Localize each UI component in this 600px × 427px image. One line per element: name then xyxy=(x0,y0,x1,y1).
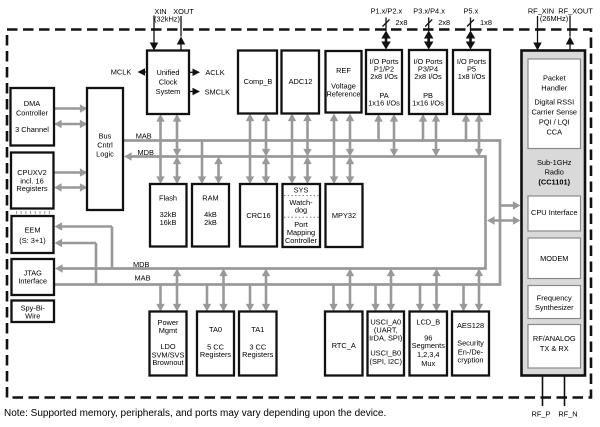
svg-text:SYS: SYS xyxy=(294,186,309,195)
svg-text:RTC_A: RTC_A xyxy=(332,341,356,350)
svg-text:2x8: 2x8 xyxy=(438,18,450,27)
svg-text:(S: 3+1): (S: 3+1) xyxy=(19,236,46,245)
svg-text:Logic: Logic xyxy=(96,150,114,159)
svg-text:CPU Interface: CPU Interface xyxy=(531,208,577,217)
svg-text:MCLK: MCLK xyxy=(111,68,132,77)
svg-text:Segments: Segments xyxy=(412,341,446,350)
svg-text:1,2,3,4: 1,2,3,4 xyxy=(417,350,440,359)
svg-text:Wire: Wire xyxy=(25,312,40,321)
svg-text:(32kHz): (32kHz) xyxy=(154,15,180,24)
svg-text:TA0: TA0 xyxy=(209,325,222,334)
svg-text:dog: dog xyxy=(295,206,307,215)
svg-text:CCA: CCA xyxy=(546,128,562,137)
svg-text:P1.x/P2.x: P1.x/P2.x xyxy=(371,6,403,15)
svg-text:CRC16: CRC16 xyxy=(246,211,270,220)
svg-text:1x16 I/Os: 1x16 I/Os xyxy=(368,99,400,108)
svg-text:1x8 I/Os: 1x8 I/Os xyxy=(458,72,486,81)
svg-text:ADC12: ADC12 xyxy=(289,77,313,86)
svg-text:IrDA, SPI): IrDA, SPI) xyxy=(369,334,402,343)
svg-text:P3.x/P4.x: P3.x/P4.x xyxy=(413,6,445,15)
svg-text:Packet: Packet xyxy=(543,74,566,83)
svg-text:1x16 I/Os: 1x16 I/Os xyxy=(412,99,444,108)
svg-text:(SPI, I2C): (SPI, I2C) xyxy=(370,357,402,366)
svg-text:Note: Supported memory, periph: Note: Supported memory, peripherals, and… xyxy=(4,408,386,419)
svg-text:SMCLK: SMCLK xyxy=(205,87,231,96)
svg-text:3 Channel: 3 Channel xyxy=(15,125,49,134)
svg-text:LCD_B: LCD_B xyxy=(416,318,440,327)
svg-text:Sub-1GHz: Sub-1GHz xyxy=(537,158,572,167)
svg-text:DMA: DMA xyxy=(24,99,40,108)
svg-text:Clock: Clock xyxy=(159,78,178,87)
svg-text:2x8 I/Os: 2x8 I/Os xyxy=(414,72,442,81)
svg-text:Synthesizer: Synthesizer xyxy=(535,303,574,312)
svg-text:Carrier Sense: Carrier Sense xyxy=(531,108,577,117)
svg-text:MDB: MDB xyxy=(137,148,153,157)
svg-text:RAM: RAM xyxy=(202,194,218,203)
svg-text:MPY32: MPY32 xyxy=(332,211,356,220)
svg-text:Security: Security xyxy=(457,339,484,348)
svg-text:Cntrl: Cntrl xyxy=(97,141,113,150)
svg-text:2x8: 2x8 xyxy=(396,18,408,27)
svg-text:Comp_B: Comp_B xyxy=(244,77,273,86)
svg-text:RF_N: RF_N xyxy=(558,410,577,419)
svg-text:RF/ANALOG: RF/ANALOG xyxy=(533,334,576,343)
svg-text:Handler: Handler xyxy=(541,84,567,93)
svg-text:Registers: Registers xyxy=(242,350,274,359)
svg-text:TA1: TA1 xyxy=(251,325,264,334)
svg-text:Registers: Registers xyxy=(16,184,48,193)
svg-text:16kB: 16kB xyxy=(160,218,177,227)
svg-text:MAB: MAB xyxy=(136,132,152,141)
svg-text:Controller: Controller xyxy=(16,109,49,118)
svg-text:Registers: Registers xyxy=(200,350,232,359)
svg-text:ACLK: ACLK xyxy=(205,68,224,77)
svg-text:RF_P: RF_P xyxy=(532,410,551,419)
svg-text:MODEM: MODEM xyxy=(540,254,568,263)
svg-text:MAB: MAB xyxy=(134,274,150,283)
svg-text:TX & RX: TX & RX xyxy=(540,344,569,353)
svg-text:Bus: Bus xyxy=(99,132,112,141)
svg-text:Reference: Reference xyxy=(326,90,360,99)
svg-text:Controller: Controller xyxy=(285,236,318,245)
svg-text:Mgmt: Mgmt xyxy=(159,326,177,335)
svg-text:Frequency: Frequency xyxy=(537,294,572,303)
svg-text:PQI / LQI: PQI / LQI xyxy=(539,118,570,127)
svg-text:Unified: Unified xyxy=(156,68,179,77)
svg-text:2x8 I/Os: 2x8 I/Os xyxy=(370,72,398,81)
svg-text:MDB: MDB xyxy=(133,260,149,269)
svg-text:Mux: Mux xyxy=(421,359,435,368)
svg-text:1x8: 1x8 xyxy=(480,18,492,27)
svg-text:AES128: AES128 xyxy=(457,321,484,330)
svg-text:(CC1101): (CC1101) xyxy=(538,178,570,187)
svg-text:P5.x: P5.x xyxy=(464,6,479,15)
svg-text:Flash: Flash xyxy=(159,194,177,203)
svg-text:cryption: cryption xyxy=(458,356,484,365)
svg-text:System: System xyxy=(156,87,181,96)
svg-text:Radio: Radio xyxy=(545,168,564,177)
svg-text:(26MHz): (26MHz) xyxy=(540,14,568,23)
svg-text:Brownout: Brownout xyxy=(152,358,183,367)
svg-text:2kB: 2kB xyxy=(204,218,217,227)
svg-text:EEM: EEM xyxy=(24,226,40,235)
svg-text:Digital RSSI: Digital RSSI xyxy=(534,98,574,107)
svg-text:Interface: Interface xyxy=(18,277,47,286)
svg-text:REF: REF xyxy=(336,66,351,75)
